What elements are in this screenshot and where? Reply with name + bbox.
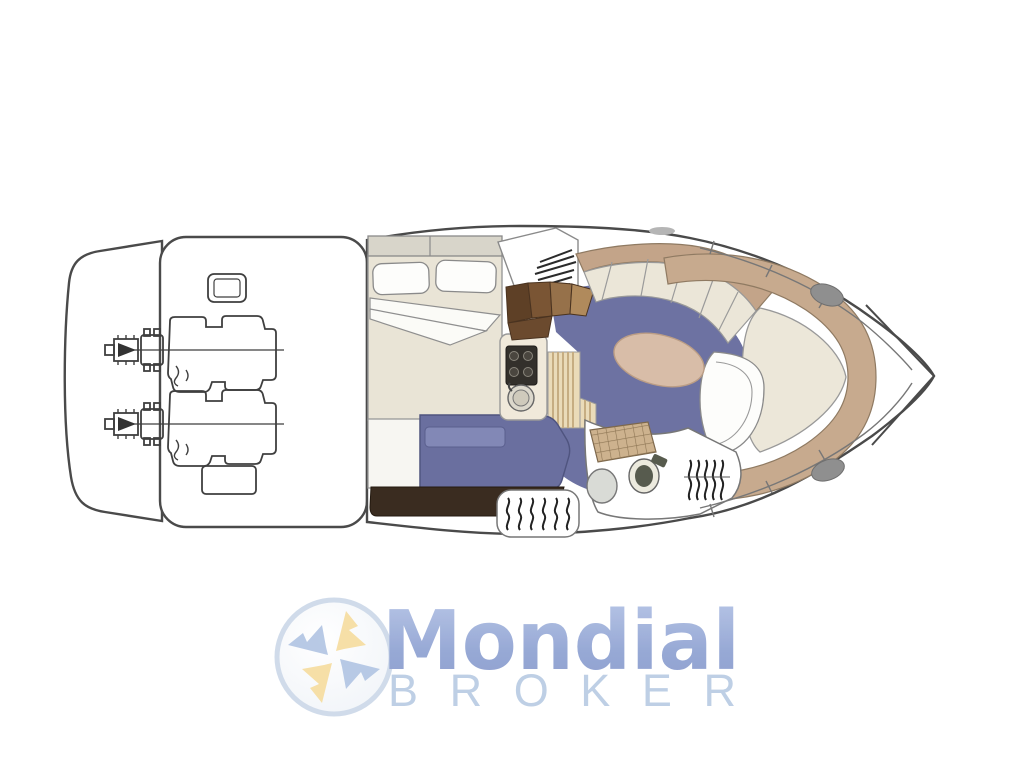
headboard-shelf <box>368 236 502 256</box>
pillow <box>372 262 429 295</box>
stove <box>506 346 537 385</box>
deck-hatch <box>649 227 675 235</box>
pillow <box>435 260 496 293</box>
mondial-broker-watermark: Mondial BROKER <box>268 593 768 728</box>
compass-pinwheel-icon <box>277 600 391 714</box>
side-cabinet <box>368 419 420 488</box>
galley <box>500 334 547 420</box>
mid-cabin <box>368 236 502 420</box>
boat-floorplan-page: Mondial BROKER <box>0 0 1024 768</box>
brand-wordmark: Mondial <box>382 594 740 689</box>
sofa-cushion <box>425 427 505 447</box>
sofa <box>420 415 570 490</box>
swim-platform <box>65 241 162 521</box>
engine-room <box>160 237 367 527</box>
bathroom-sink <box>587 469 617 503</box>
side-steps <box>497 490 579 537</box>
